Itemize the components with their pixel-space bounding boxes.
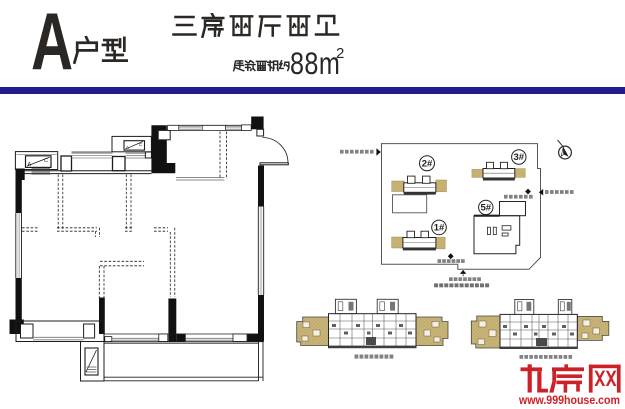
svg-text:A: A xyxy=(28,162,32,168)
svg-text:C: C xyxy=(44,158,48,164)
svg-text:5#: 5# xyxy=(481,203,492,214)
svg-text:1#: 1# xyxy=(434,223,445,234)
svg-text:2#: 2# xyxy=(422,159,433,170)
svg-text:3#: 3# xyxy=(514,152,525,163)
